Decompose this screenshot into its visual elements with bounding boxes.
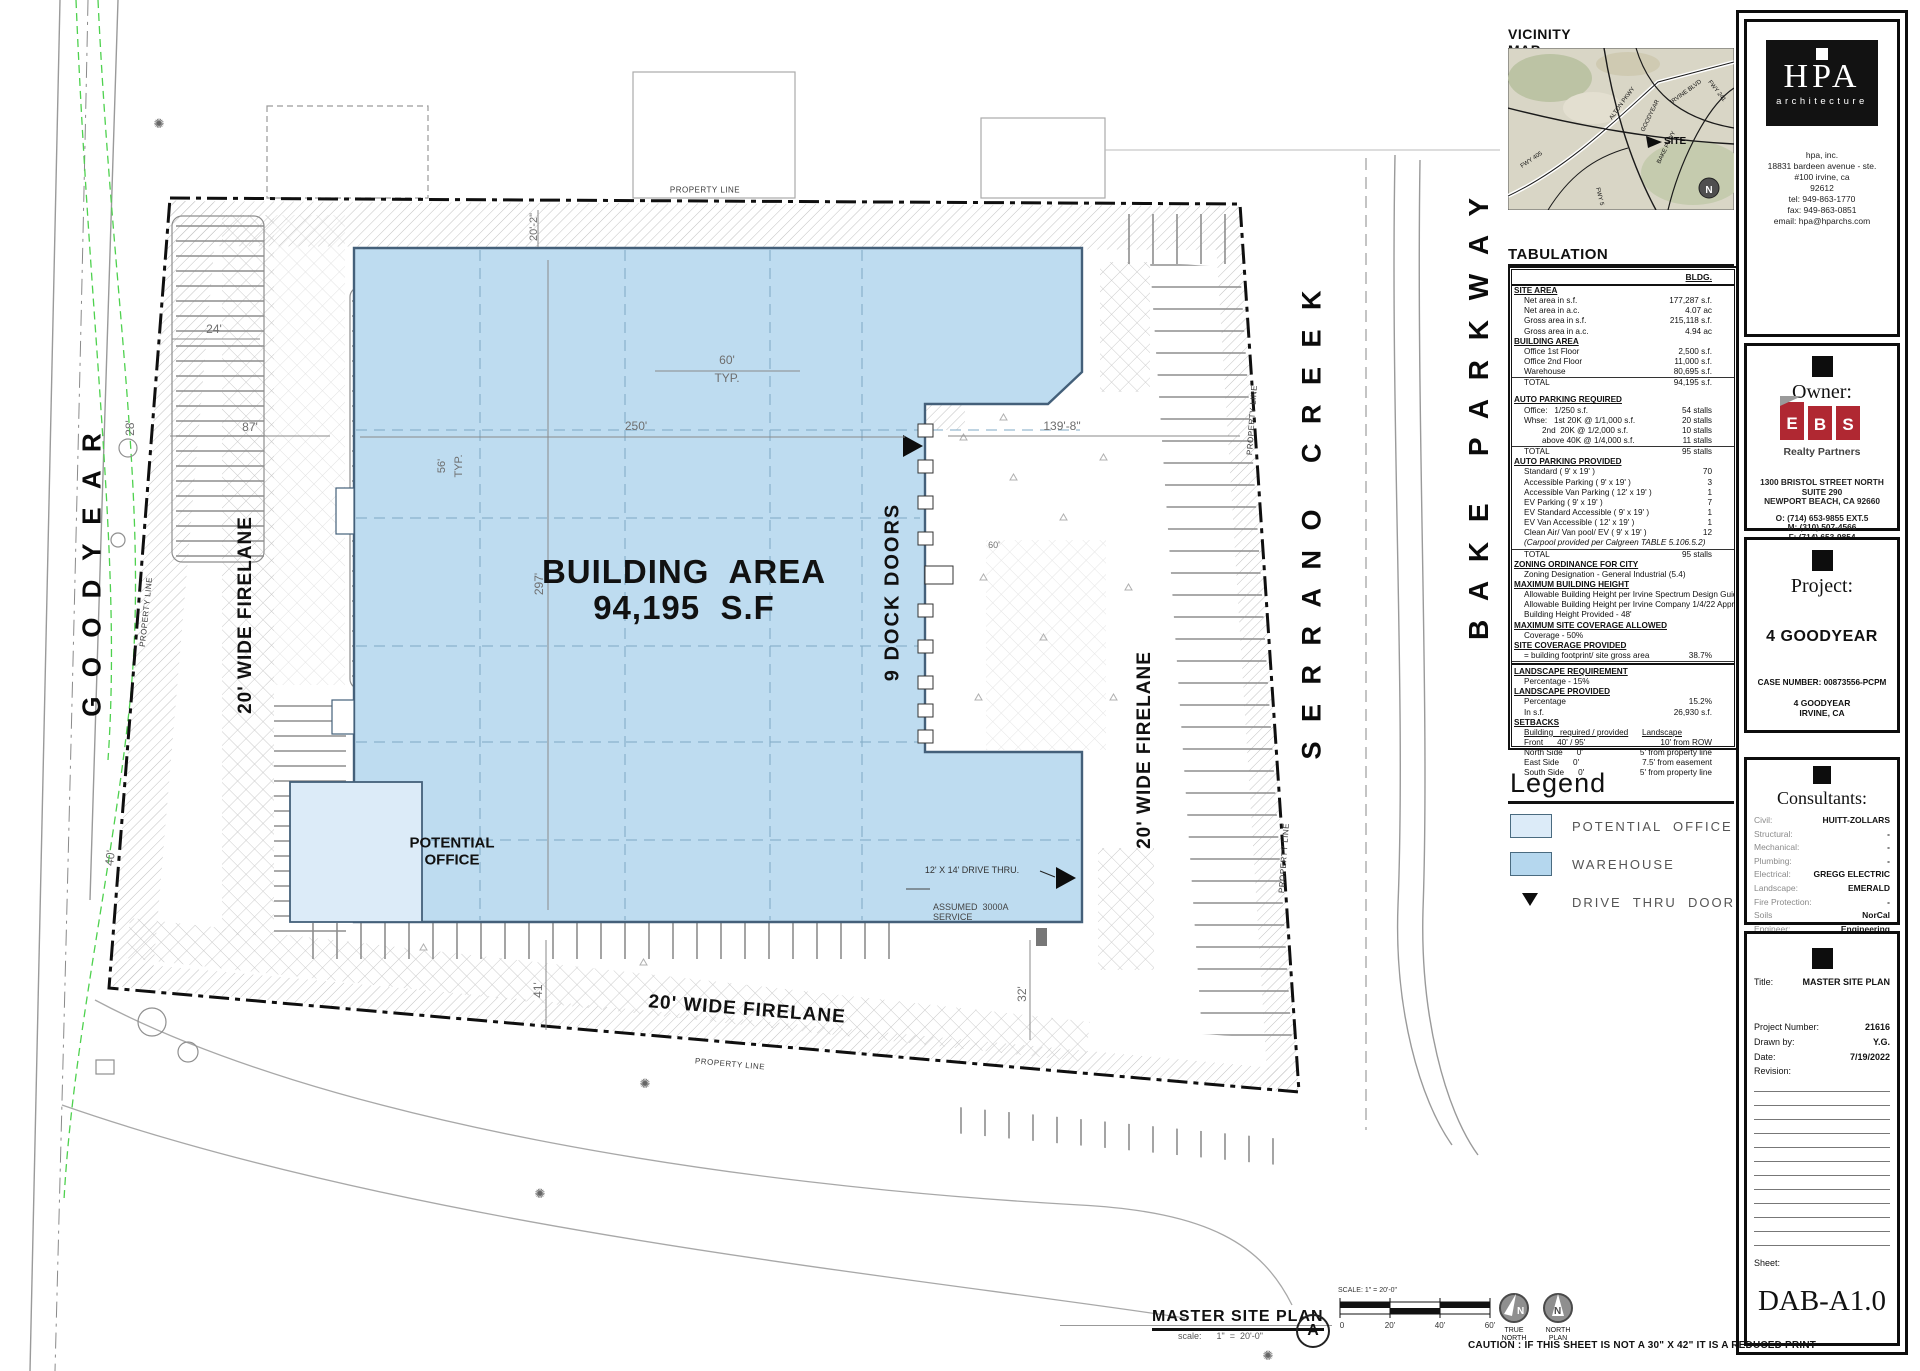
firelane-label-west: 20' WIDE FIRELANE <box>235 516 257 714</box>
tabulation-row: Allowable Building Height per Irvine Spe… <box>1512 590 1734 600</box>
property-line-tag-top: PROPERTY LINE <box>670 186 740 195</box>
potential-office-label: POTENTIAL <box>410 835 495 852</box>
tabulation-row: East Side0'7.5' from easement <box>1512 758 1734 768</box>
tabulation-body: SITE AREANet area in s.f.177,287 s.f.Net… <box>1512 286 1734 779</box>
tabulation-row: Net area in s.f.177,287 s.f. <box>1512 296 1734 306</box>
tabulation-row: TOTAL95 stalls <box>1512 550 1734 560</box>
tabulation-row: SITE AREA <box>1512 286 1734 296</box>
tabulation-row: Standard ( 9' x 19' )70 <box>1512 467 1734 477</box>
revision-lines <box>1747 1078 1897 1246</box>
context-buildings <box>267 72 1500 198</box>
hpa-logo: HPA architecture <box>1766 40 1878 126</box>
owner-square-icon <box>1812 356 1833 377</box>
dim-60-court: 60' <box>988 540 1000 550</box>
ebs-logo-flag <box>1780 396 1802 406</box>
scale-bar: SCALE: 1" = 20'-0" 0 20' 40' 60' <box>1330 1284 1505 1334</box>
tabulation-row: BUILDING AREA <box>1512 337 1734 347</box>
svg-text:0: 0 <box>1340 1321 1345 1330</box>
tabulation-row: MAXIMUM BUILDING HEIGHT <box>1512 580 1734 590</box>
tabulation-row: Office 2nd Floor11,000 s.f. <box>1512 357 1734 367</box>
drawing-sheet: ✺✺✺✺ G O O D Y E A R S E R R A N O C R E… <box>0 0 1920 1371</box>
dim-297: 297' <box>532 573 546 595</box>
consultants-square-icon <box>1813 766 1831 784</box>
tabulation-row: LANDSCAPE PROVIDED <box>1512 687 1734 697</box>
tabulation-row: Percentage - 15% <box>1512 677 1734 687</box>
svg-text:N: N <box>1554 1306 1561 1317</box>
tabulation-row: (Carpool provided per Calgreen TABLE 5.1… <box>1512 538 1734 549</box>
dim-40: 40' <box>102 849 118 866</box>
tabulation-row: Percentage15.2% <box>1512 697 1734 707</box>
tabulation-row: = building footprint/ site gross area38.… <box>1512 651 1734 662</box>
tabulation-row: North Side0'5' from property line <box>1512 748 1734 758</box>
dim-87: 87' <box>242 420 258 434</box>
tabulation-row: Office 1st Floor2,500 s.f. <box>1512 347 1734 357</box>
tabulation-row: AUTO PARKING REQUIRED <box>1512 395 1734 405</box>
tabulation-row: Office: 1/250 s.f.54 stalls <box>1512 406 1734 416</box>
tabulation-row: ZONING ORDINANCE FOR CITY <box>1512 560 1734 570</box>
road-label-goodyear: G O O D Y E A R <box>77 427 108 716</box>
tabulation-row: SETBACKS <box>1512 718 1734 728</box>
plan-north-icon: N <box>1544 1294 1572 1322</box>
tabulation-row: EV Standard Accessible ( 9' x 19' )1 <box>1512 508 1734 518</box>
tabulation-row: Coverage - 50% <box>1512 631 1734 641</box>
dim-28: 28' <box>123 420 137 436</box>
project-name: 4 GOODYEAR <box>1747 628 1897 646</box>
architect-block: HPA architecture hpa, inc.18831 bardeen … <box>1744 19 1900 337</box>
road-label-serrano-creek: S E R R A N O C R E E K <box>1297 284 1328 759</box>
site-label: SITE <box>1664 136 1687 147</box>
site-plan-drawing: ✺✺✺✺ <box>0 0 1500 1371</box>
legend-swatch-office <box>1510 814 1552 838</box>
serrano-creek-lines <box>1366 155 1478 1155</box>
svg-text:TRUE: TRUE <box>1504 1327 1523 1334</box>
building-area-label: BUILDING AREA <box>542 553 826 591</box>
assumed-service-label: ASSUMED 3000ASERVICE <box>933 882 1009 942</box>
legend-label-office: POTENTIAL OFFICE <box>1572 819 1733 834</box>
dim-139-8: 139'-8" <box>1043 419 1080 433</box>
tabulation-row: Net area in a.c.4.07 ac <box>1512 306 1734 316</box>
svg-text:20': 20' <box>1385 1321 1396 1330</box>
tabulation-row: Building Height Provided - 48' <box>1512 610 1734 620</box>
project-case-number: CASE NUMBER: 00873556-PCPM <box>1747 678 1897 687</box>
tabulation-table: BLDG. SITE AREANet area in s.f.177,287 s… <box>1508 266 1738 750</box>
legend-swatch-warehouse <box>1510 852 1552 876</box>
tabulation-row: Gross area in a.c.4.94 ac <box>1512 327 1734 337</box>
tabulation-row: TOTAL95 stalls <box>1512 447 1734 457</box>
sheet-title-block: Title:MASTER SITE PLAN Project Number:21… <box>1744 931 1900 1346</box>
svg-text:N: N <box>1705 185 1712 196</box>
tabulation-row: Accessible Parking ( 9' x 19' )3 <box>1512 478 1734 488</box>
legend-label-warehouse: WAREHOUSE <box>1572 857 1675 872</box>
svg-text:NORTH: NORTH <box>1546 1327 1571 1334</box>
consultants-block: Consultants: Civil:HUITT-ZOLLARS Structu… <box>1744 757 1900 925</box>
architect-address: hpa, inc.18831 bardeen avenue - ste.#100… <box>1747 150 1897 227</box>
hpa-logo-tagline: architecture <box>1766 96 1878 107</box>
tabulation-row: Accessible Van Parking ( 12' x 19' )1 <box>1512 488 1734 498</box>
caution-note: CAUTION : IF THIS SHEET IS NOT A 30" X 4… <box>1468 1340 1816 1351</box>
legend-title: Legend <box>1510 768 1606 799</box>
svg-text:40': 40' <box>1435 1321 1446 1330</box>
title-block-column: HPA architecture hpa, inc.18831 bardeen … <box>1736 10 1908 1355</box>
ebs-logo: E B S <box>1780 398 1864 444</box>
potential-office-footprint <box>290 782 422 922</box>
tabulation-row: Gross area in s.f.215,118 s.f. <box>1512 316 1734 326</box>
svg-text:SCALE: 1" = 20'-0": SCALE: 1" = 20'-0" <box>1338 1287 1398 1294</box>
tabulation-row: Clean Air/ Van pool/ EV ( 9' x 19' )12 <box>1512 528 1734 538</box>
tabulation-row: Zoning Designation - General Industrial … <box>1512 570 1734 580</box>
dim-60typ-typ: TYP. <box>714 371 739 385</box>
tabulation-row: Front40' / 95'10' from ROW <box>1512 738 1734 748</box>
legend-title-rule <box>1508 801 1734 804</box>
tabulation-row: TOTAL94,195 s.f. <box>1512 378 1734 388</box>
building-area-sf: 94,195 S.F <box>593 589 775 627</box>
road-label-bake-parkway: B A K E P A R K W A Y <box>1463 192 1495 640</box>
project-block: Project: 4 GOODYEAR CASE NUMBER: 0087355… <box>1744 537 1900 733</box>
svg-text:✺: ✺ <box>1263 1348 1274 1363</box>
tabulation-row: Allowable Building Height per Irvine Com… <box>1512 600 1734 610</box>
tabulation-row: above 40K @ 1/4,000 s.f.11 stalls <box>1512 436 1734 447</box>
tabulation-row: EV Van Accessible ( 12' x 19' )1 <box>1512 518 1734 528</box>
consultants-heading: Consultants: <box>1747 788 1897 809</box>
dim-60typ: 60' <box>719 353 735 367</box>
dim-24: 24' <box>206 322 222 336</box>
svg-text:N: N <box>1517 1306 1524 1317</box>
owner-block: Owner: E B S Realty Partners 1300 BRISTO… <box>1744 343 1900 531</box>
map-north-icon: N <box>1699 178 1719 198</box>
ebs-logo-sub: Realty Partners <box>1747 446 1897 458</box>
tabulation-col-header: BLDG. <box>1512 271 1734 286</box>
vicinity-map: FWY 405 FWY 5 ALTON PKWY GOODYEAR BAKE P… <box>1508 48 1734 210</box>
dim-32: 32' <box>1015 986 1029 1002</box>
dim-56: 56' <box>436 459 448 473</box>
tabulation-row: EV Parking ( 9' x 19' )7 <box>1512 498 1734 508</box>
detail-marker: A <box>1296 1314 1330 1348</box>
title-square-icon <box>1812 948 1833 969</box>
tabulation-row: SITE COVERAGE PROVIDED <box>1512 641 1734 651</box>
project-site-address: 4 GOODYEARIRVINE, CA <box>1747 698 1897 718</box>
tabulation-row: 2nd 20K @ 1/2,000 s.f.10 stalls <box>1512 426 1734 436</box>
tabulation-title: TABULATION <box>1508 246 1734 266</box>
project-heading: Project: <box>1747 575 1897 598</box>
tabulation-row: MAXIMUM SITE COVERAGE ALLOWED <box>1512 621 1734 631</box>
sheet-title-row: Title:MASTER SITE PLAN <box>1747 975 1897 990</box>
dim-250: 250' <box>625 419 647 433</box>
dock-doors-label: 9 DOCK DOORS <box>882 503 905 681</box>
project-square-icon <box>1812 550 1833 571</box>
tabulation-row: Whse: 1st 20K @ 1/1,000 s.f.20 stalls <box>1512 416 1734 426</box>
firelane-label-east: 20' WIDE FIRELANE <box>1134 651 1156 849</box>
tabulation-row: LANDSCAPE REQUIREMENT <box>1512 667 1734 677</box>
consultants-rows: Civil:HUITT-ZOLLARS Structural:- Mechani… <box>1747 814 1897 936</box>
legend-drive-thru-icon <box>1522 893 1538 906</box>
drive-thru-label: 12' X 14' DRIVE THRU. <box>925 865 1019 875</box>
legend-label-drive-thru: DRIVE THRU DOOR <box>1572 895 1735 910</box>
svg-text:✺: ✺ <box>535 1186 546 1201</box>
true-north-icon: N <box>1500 1294 1528 1322</box>
plan-scale-note: scale: 1" = 20'-0" <box>1178 1331 1263 1341</box>
bottom-road <box>62 1000 1292 1318</box>
tabulation-row: Warehouse80,695 s.f. <box>1512 367 1734 378</box>
sheet-number: DAB-A1.0 <box>1747 1285 1897 1318</box>
tabulation-row: In s.f.26,930 s.f. <box>1512 708 1734 718</box>
hpa-logo-text: HPA <box>1766 60 1878 94</box>
tabulation-row <box>1512 388 1734 395</box>
dim-20-2: 20'-2" <box>528 213 540 241</box>
tabulation-row: Building required / providedLandscape <box>1512 728 1734 738</box>
dim-41: 41' <box>531 982 545 998</box>
svg-text:✺: ✺ <box>154 116 165 131</box>
potential-office-label2: OFFICE <box>425 852 480 869</box>
svg-text:✺: ✺ <box>640 1076 651 1091</box>
dim-56-typ: TYP. <box>453 454 465 477</box>
tabulation-row: AUTO PARKING PROVIDED <box>1512 457 1734 467</box>
